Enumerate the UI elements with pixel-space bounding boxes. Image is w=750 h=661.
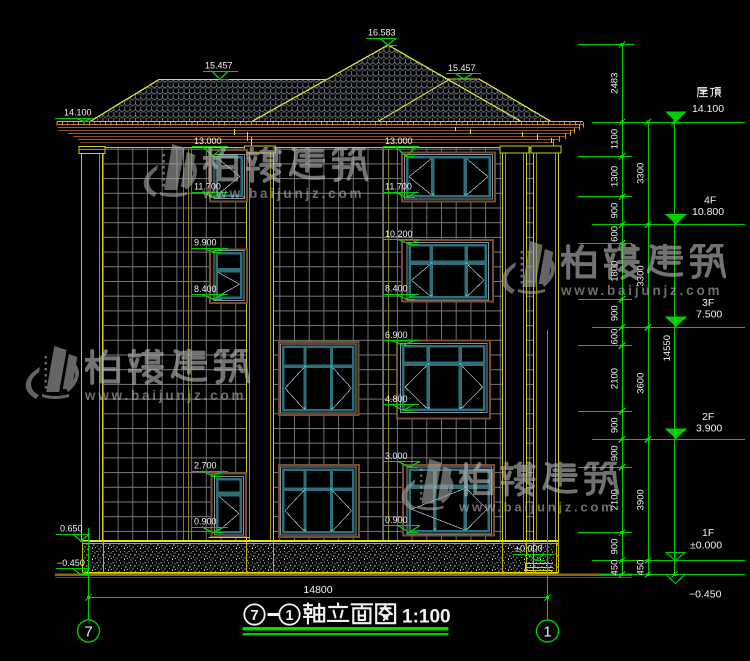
svg-text:7.500: 7.500	[696, 309, 722, 321]
svg-text:2483: 2483	[610, 73, 621, 94]
svg-text:±0.000: ±0.000	[515, 544, 542, 554]
svg-text:4F: 4F	[704, 195, 716, 207]
svg-text:www.baijunjz.com: www.baijunjz.com	[202, 186, 364, 201]
svg-text:0.900: 0.900	[194, 517, 217, 527]
svg-text:−0.450: −0.450	[689, 589, 722, 601]
svg-text:4.800: 4.800	[385, 394, 408, 404]
svg-text:3.000: 3.000	[385, 451, 408, 461]
svg-text:www.baijunjz.com: www.baijunjz.com	[458, 499, 615, 514]
svg-text:13.000: 13.000	[194, 136, 222, 146]
svg-text:450: 450	[636, 560, 647, 576]
svg-text:14.100: 14.100	[692, 103, 724, 115]
svg-text:11.700: 11.700	[385, 182, 412, 192]
svg-text:9.900: 9.900	[194, 238, 217, 248]
svg-text:1: 1	[543, 624, 551, 641]
svg-text:8.400: 8.400	[194, 284, 217, 294]
svg-text:−0.450: −0.450	[57, 558, 85, 568]
svg-text:1: 1	[285, 608, 293, 624]
svg-text:3F: 3F	[702, 297, 714, 309]
svg-text:600: 600	[610, 226, 621, 242]
svg-text:2.700: 2.700	[194, 461, 217, 471]
svg-text:8.400: 8.400	[385, 284, 408, 294]
svg-text:13.000: 13.000	[385, 136, 413, 146]
svg-text:1F: 1F	[702, 527, 714, 539]
svg-text:3900: 3900	[636, 489, 647, 510]
svg-text:900: 900	[610, 445, 621, 461]
svg-text:14800: 14800	[303, 584, 332, 596]
svg-text:0.650: 0.650	[60, 524, 83, 534]
svg-text:10.800: 10.800	[692, 206, 724, 218]
svg-text:900: 900	[610, 203, 621, 219]
svg-text:7: 7	[250, 608, 258, 624]
svg-text:3300: 3300	[636, 163, 647, 184]
svg-text:www.baijunjz.com: www.baijunjz.com	[560, 283, 722, 298]
svg-text:3.900: 3.900	[696, 423, 722, 435]
svg-text:±0.000: ±0.000	[690, 540, 722, 552]
svg-text:15.457: 15.457	[205, 61, 233, 71]
svg-text:900: 900	[610, 305, 621, 321]
svg-text:2F: 2F	[702, 411, 714, 423]
svg-text:1:100: 1:100	[402, 607, 451, 628]
svg-text:450: 450	[610, 560, 621, 576]
svg-text:10.200: 10.200	[385, 229, 413, 239]
svg-text:900: 900	[610, 417, 621, 433]
svg-text:6.900: 6.900	[385, 330, 408, 340]
svg-text:3600: 3600	[636, 373, 647, 394]
svg-text:www.baijunjz.com: www.baijunjz.com	[84, 388, 246, 403]
svg-text:600: 600	[610, 329, 621, 345]
svg-text:15.457: 15.457	[448, 63, 476, 73]
svg-text:14.100: 14.100	[64, 108, 92, 118]
svg-text:1100: 1100	[610, 129, 621, 149]
svg-text:7: 7	[84, 624, 92, 641]
svg-text:16.583: 16.583	[368, 28, 396, 38]
svg-text:0.900: 0.900	[385, 515, 408, 525]
svg-text:14550: 14550	[662, 335, 673, 361]
svg-text:2100: 2100	[610, 368, 621, 389]
svg-text:1300: 1300	[610, 166, 621, 187]
svg-text:900: 900	[610, 539, 621, 555]
